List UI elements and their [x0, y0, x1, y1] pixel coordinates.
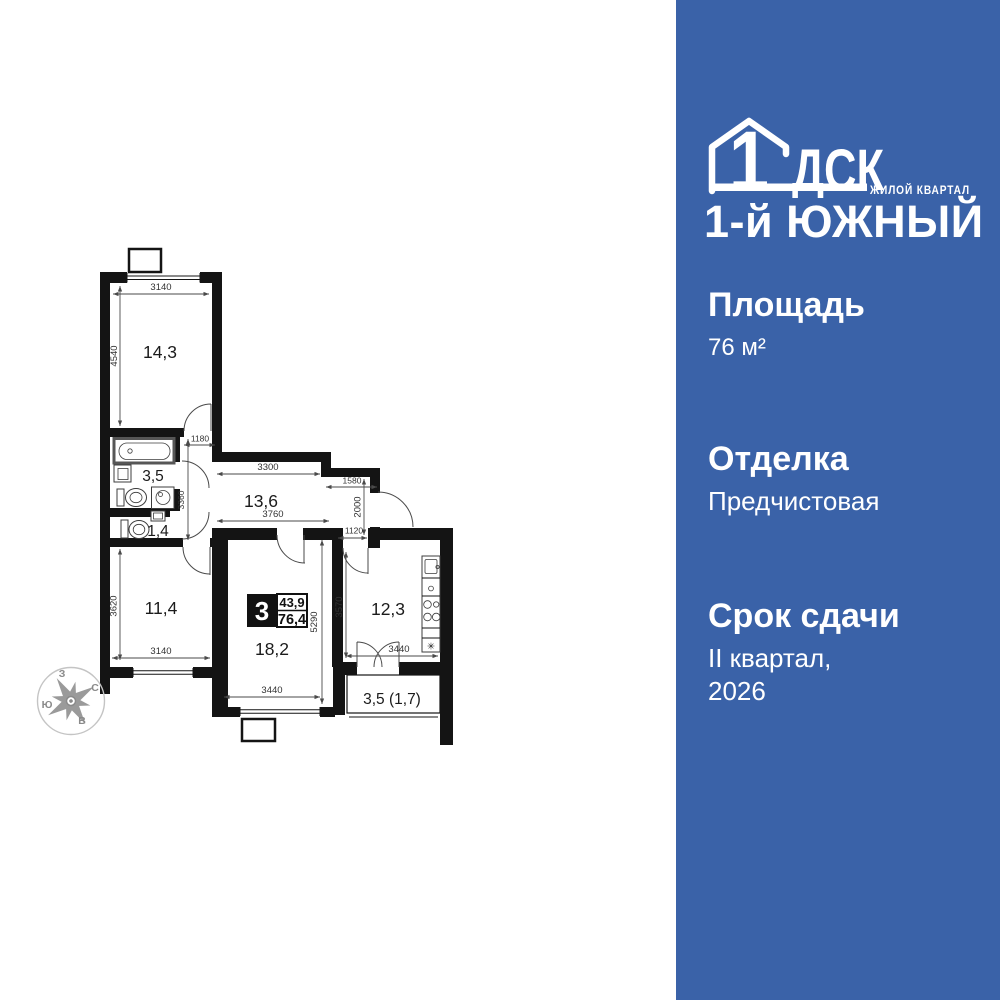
badge-rooms: 3 [255, 596, 269, 626]
finish-block: Отделка Предчистовая [708, 440, 879, 518]
bathtub-icon [114, 439, 174, 464]
compass-icon: З С В Ю [34, 664, 108, 738]
dim-kitchen-width: 3440 [388, 644, 409, 655]
bathroom-sink-icon [114, 465, 131, 482]
dim-hall-height: 2000 [353, 496, 364, 517]
finish-label: Отделка [708, 440, 879, 478]
room-label-bathroom: 3,5 [142, 468, 164, 485]
dim-hall-width: 3300 [257, 462, 278, 473]
dim-nook-width: 1180 [191, 434, 210, 444]
dim-kitchen-height: 3570 [334, 596, 345, 617]
badge-living-area: 43,9 [279, 595, 304, 610]
finish-value: Предчистовая [708, 485, 879, 518]
dim-kitchen-door: 1120 [345, 526, 364, 536]
project-name: 1-й ЮЖНЫЙ [704, 196, 984, 248]
washing-machine-icon [152, 487, 175, 509]
dim-living-height: 5290 [309, 611, 320, 632]
room-label-balcony: 3,5 (1,7) [363, 691, 421, 708]
deadline-block: Срок сдачи II квартал, 2026 [708, 597, 900, 708]
dim-room1-height: 4540 [109, 345, 120, 366]
fridge-icon: ✳ [427, 642, 435, 653]
vent-shaft-bottom [242, 719, 275, 741]
wc-toilet-icon [121, 520, 149, 539]
area-value: 76 м² [708, 331, 865, 364]
room-label-bedroom2: 11,4 [145, 598, 178, 618]
dim-room2-height: 3620 [109, 595, 120, 616]
room-label-kitchen: 12,3 [371, 599, 405, 619]
vent-shaft-top [129, 249, 161, 272]
room-label-wc: 1,4 [147, 523, 169, 540]
bathroom-toilet-icon [117, 489, 147, 507]
deadline-value-line2: 2026 [708, 675, 900, 708]
room-label-bedroom1: 14,3 [143, 342, 177, 362]
flyer: ✳ 3140 4540 1180 3300 1580 2000 3760 112… [0, 0, 1000, 1000]
badge-total-area: 76,4 [278, 612, 306, 628]
compass-north: С [91, 682, 99, 694]
wc-sink-icon [151, 511, 165, 521]
area-label: Площадь [708, 286, 865, 324]
compass-west: З [59, 668, 66, 680]
deadline-value-line1: II квартал, [708, 642, 900, 675]
dim-hall-niche: 1580 [343, 476, 362, 486]
room-label-hallway: 13,6 [244, 491, 278, 511]
room-label-living: 18,2 [255, 639, 289, 659]
apartment-badge: 3 43,9 76,4 [247, 594, 307, 628]
dim-bath-height: 3360 [176, 490, 186, 509]
compass-east: В [78, 715, 86, 727]
dim-room2-width: 3140 [150, 646, 171, 657]
dim-living-width: 3440 [261, 685, 282, 696]
deadline-label: Срок сдачи [708, 597, 900, 635]
compass-south: Ю [42, 699, 53, 711]
floor-plan: ✳ 3140 4540 1180 3300 1580 2000 3760 112… [0, 0, 676, 1000]
info-panel: 1 ДСК ЖИЛОЙ КВАРТАЛ 1-й ЮЖНЫЙ Площадь 76… [676, 0, 1000, 1000]
brand-logo: 1 ДСК ЖИЛОЙ КВАРТАЛ [704, 114, 976, 198]
entrance-door-icon [378, 492, 413, 527]
area-block: Площадь 76 м² [708, 286, 865, 364]
dim-room1-width: 3140 [150, 282, 171, 293]
kitchen-counter-icon: ✳ [422, 556, 440, 653]
room-labels: 14,3 3,5 1,4 13,6 11,4 18,2 12,3 3,5 (1,… [142, 342, 421, 708]
